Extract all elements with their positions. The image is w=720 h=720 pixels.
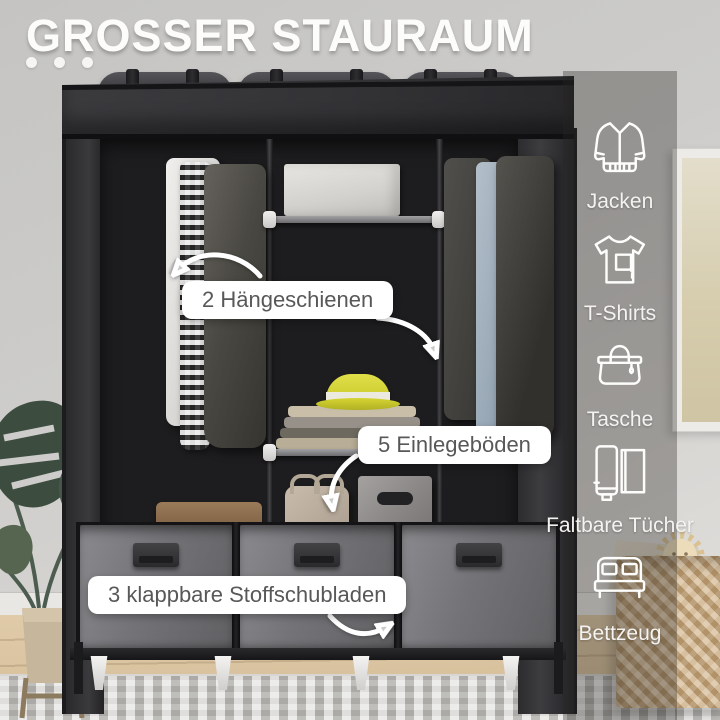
hanging-dark-jacket: [496, 156, 554, 440]
title-dot: [82, 57, 93, 68]
drawer-handle: [294, 543, 340, 567]
feature-faltbare-tuecher: Faltbare Tücher: [546, 440, 694, 538]
handbag-icon: [588, 334, 652, 398]
column-divider: [436, 134, 443, 580]
shelf-connector: [263, 444, 276, 461]
hat-brim: [316, 398, 400, 410]
feature-label: Bettzeug: [579, 622, 662, 646]
feature-label: Jacken: [587, 190, 654, 214]
product-infographic: Jacken T-Shirts Tasche Fa: [0, 0, 720, 720]
page-title: GROSSER STAURAUM: [26, 10, 534, 62]
box-handle-hole: [377, 492, 413, 505]
folded-towels-icon: [588, 440, 652, 504]
feature-bettzeug: Bettzeug: [579, 548, 662, 646]
wall-picture-frame: [672, 148, 720, 432]
shelf: [270, 216, 440, 223]
frame-leg: [554, 642, 563, 694]
shelf-connector: [263, 211, 276, 228]
picture-artwork: [682, 158, 720, 422]
drawer-handle: [133, 543, 179, 567]
callout-drawers: 3 klappbare Stoffschubladen: [88, 576, 406, 614]
fabric-drawer: [402, 525, 556, 649]
tshirt-icon: [588, 228, 652, 292]
feature-label: T-Shirts: [584, 302, 656, 326]
wardrobe-foot: [350, 656, 372, 690]
title-dot: [54, 57, 65, 68]
feature-tshirts: T-Shirts: [584, 228, 656, 326]
column-divider: [266, 134, 273, 580]
title-dot: [26, 57, 37, 68]
feature-label: Faltbare Tücher: [546, 514, 694, 538]
wardrobe-interior: [100, 134, 518, 580]
drawer-handle: [456, 543, 502, 567]
jacket-icon: [588, 116, 652, 180]
wardrobe-foot: [212, 656, 234, 690]
feature-label: Tasche: [587, 408, 654, 432]
bed-icon: [588, 548, 652, 612]
feature-tasche: Tasche: [587, 334, 654, 432]
callout-shelves: 5 Einlegeböden: [358, 426, 551, 464]
wardrobe-top-cover: [62, 76, 574, 139]
feature-jacken: Jacken: [587, 116, 654, 214]
callout-hanging-rails: 2 Hängeschienen: [182, 281, 393, 319]
bottom-frame-bar: [70, 648, 566, 660]
folded-blanket-box: [284, 164, 400, 216]
frame-leg: [74, 642, 83, 694]
